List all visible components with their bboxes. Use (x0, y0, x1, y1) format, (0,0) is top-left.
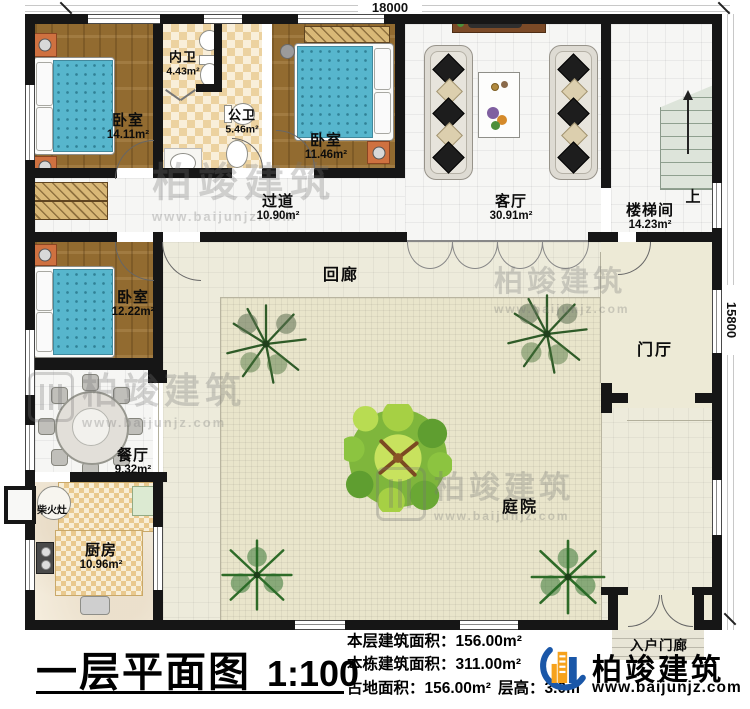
wall-interior (25, 168, 117, 178)
floor-plan-sheet: 18000 15800 (0, 0, 750, 709)
dimension-height-label: 15800 (723, 285, 739, 355)
window (25, 85, 35, 160)
brand-url: www.baijunjz.com (592, 679, 742, 697)
chimney-niche (4, 486, 36, 524)
room-label-bedroom1: 卧室14.11m² (107, 112, 149, 142)
wall-interior (148, 370, 167, 383)
stat-floor-area: 本层建筑面积：156.00m² (347, 629, 522, 651)
stat-land-area: 占地面积：156.00m² (347, 676, 491, 698)
wall-interior (636, 232, 712, 242)
foyer-boundary-line (600, 252, 601, 383)
room-label-bath-inner: 内卫4.43m² (166, 51, 199, 78)
annotation-wood-stove: 柴火灶 (37, 502, 67, 517)
palm-tree (500, 288, 594, 380)
nightstand (33, 244, 57, 266)
window (25, 330, 35, 395)
window (295, 620, 345, 630)
bed-mattress (53, 60, 113, 152)
floor-lamp (280, 44, 295, 59)
pillow (374, 48, 391, 90)
dining-opening-line (158, 383, 159, 472)
dimension-tick (60, 2, 73, 15)
wall-interior (25, 232, 117, 242)
kitchen-sink (80, 596, 110, 615)
window (25, 425, 35, 470)
room-label-cloister: 回廊 (323, 261, 359, 285)
sofa (549, 45, 598, 180)
stat-total-area: 本栋建筑面积：311.00m² (347, 652, 521, 674)
wall-interior (153, 232, 163, 242)
wall-interior (200, 232, 407, 242)
wall-foyer-stub (695, 393, 712, 403)
room-label-kitchen: 厨房10.96m² (80, 542, 123, 572)
stairs-arrowhead (683, 90, 693, 100)
title-block: 一层平面图 1:100 (36, 638, 359, 698)
room-label-hallway: 过道10.90m² (257, 193, 300, 223)
wall-interior (163, 168, 232, 178)
dimension-width-label: 18000 (358, 0, 422, 15)
wardrobe (28, 182, 108, 201)
chair (82, 374, 99, 391)
room-label-bedroom2: 卧室11.46m² (305, 132, 347, 162)
room-label-foyer: 门厅 (637, 336, 673, 360)
bed-mattress (53, 269, 113, 355)
wall-interior (153, 482, 163, 527)
dimension-tick (718, 2, 731, 15)
annotation-stairs-up: 上 (685, 186, 702, 207)
nightstand (33, 33, 57, 57)
gas-stove (36, 542, 54, 574)
sofa (424, 45, 473, 180)
window (712, 290, 722, 353)
fridge (132, 486, 155, 516)
pillow (374, 92, 391, 134)
palm-tree (212, 534, 302, 616)
bed-mattress (297, 46, 373, 138)
wall-interior (588, 232, 618, 242)
wall-interior (601, 14, 611, 188)
palm-tree (524, 534, 612, 620)
window (712, 183, 722, 228)
wall-porch (608, 587, 618, 630)
pillow (36, 312, 53, 352)
room-label-dining: 餐厅9.32m² (115, 447, 151, 477)
coffee-table (478, 72, 520, 138)
window (712, 480, 722, 535)
title-underline (36, 691, 344, 694)
stairs-direction-arrow (687, 98, 689, 154)
room-label-living: 客厅30.91m² (490, 193, 533, 223)
wall-interior (153, 590, 163, 620)
wall-foyer-stub (612, 393, 628, 403)
room-label-bedroom3: 卧室12.22m² (112, 289, 155, 319)
big-tree (344, 404, 452, 512)
palm-tree (218, 298, 314, 390)
window (204, 14, 242, 24)
wardrobe (28, 201, 108, 220)
window (298, 14, 384, 24)
plan-title: 一层平面图 (36, 638, 251, 698)
wall-porch (694, 587, 704, 630)
wall-interior (25, 358, 153, 370)
pillow (36, 107, 53, 151)
wall-interior (214, 14, 222, 92)
wall-interior (196, 84, 222, 92)
room-label-bath-public: 公卫5.46m² (225, 109, 258, 136)
brand-logo-icon (536, 640, 588, 700)
pillow (36, 271, 53, 311)
window (153, 527, 163, 590)
window (25, 540, 35, 590)
plan-scale: 1:100 (267, 653, 359, 695)
dimension-tick (724, 613, 737, 626)
wall-interior (314, 168, 405, 178)
wall-interior (153, 14, 163, 178)
pillow (36, 62, 53, 106)
dining-table-center (72, 408, 110, 446)
nightstand (367, 141, 390, 164)
room-label-courtyard: 庭院 (502, 493, 538, 517)
wardrobe (304, 26, 390, 43)
chair (38, 418, 55, 435)
wall-interior (262, 168, 276, 178)
room-label-stairwell: 楼梯间14.23m² (626, 202, 674, 232)
window (88, 14, 160, 24)
foyer-threshold-line (627, 420, 712, 421)
wall-foyer-stub (601, 383, 612, 413)
wall-interior (395, 14, 405, 178)
